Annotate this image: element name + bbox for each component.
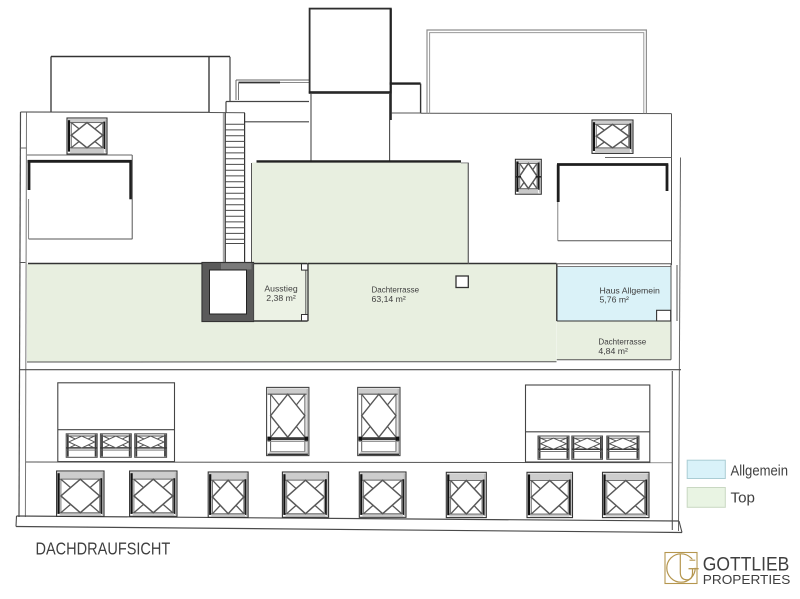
svg-text:5,76 m²: 5,76 m² [600,294,630,304]
svg-text:Dachterrasse: Dachterrasse [372,284,420,294]
svg-text:PROPERTIES: PROPERTIES [703,572,791,587]
svg-text:Ausstieg: Ausstieg [264,284,297,294]
svg-text:2,38 m²: 2,38 m² [266,293,296,303]
svg-text:Dachterrasse: Dachterrasse [598,337,646,347]
svg-text:63,14 m²: 63,14 m² [372,294,406,304]
svg-text:Top: Top [731,491,756,507]
svg-text:DACHDRAUFSICHT: DACHDRAUFSICHT [36,539,171,559]
svg-text:4,84 m²: 4,84 m² [598,346,628,356]
svg-text:Allgemein: Allgemein [731,464,789,480]
